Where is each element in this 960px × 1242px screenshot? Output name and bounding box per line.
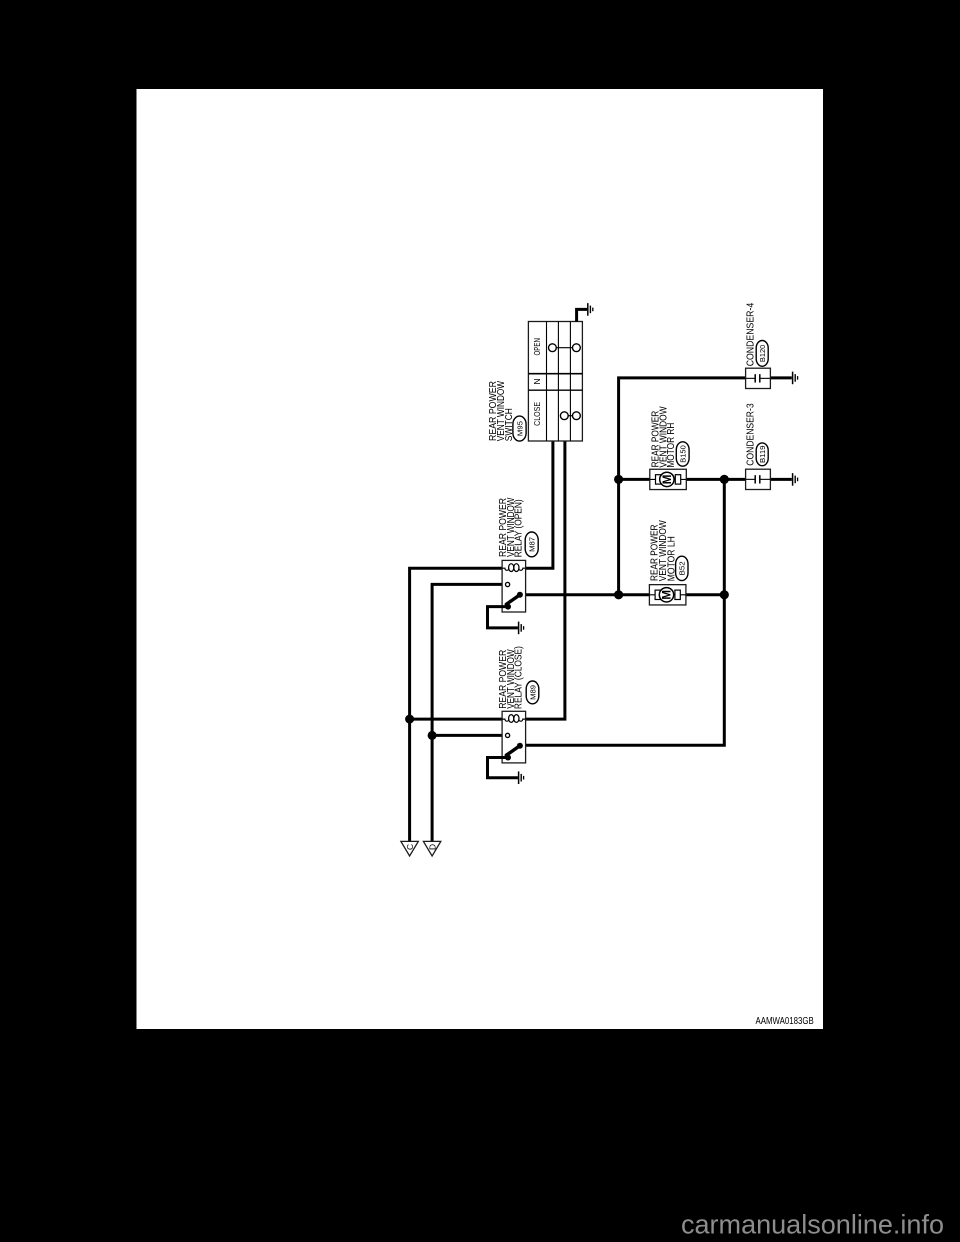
svg-text:carmanualsonline.info: carmanualsonline.info: [681, 1209, 944, 1239]
svg-text:OPEN: OPEN: [532, 338, 542, 356]
svg-text:B150: B150: [679, 445, 688, 463]
svg-text:N: N: [532, 378, 542, 384]
svg-text:D: D: [428, 844, 438, 850]
svg-text:M95: M95: [515, 421, 524, 436]
svg-text:C: C: [405, 844, 415, 850]
svg-text:CLOSE: CLOSE: [532, 402, 542, 426]
svg-text:B52: B52: [678, 561, 687, 575]
svg-text:M: M: [661, 590, 674, 600]
svg-text:M87: M87: [528, 537, 537, 552]
svg-text:M: M: [661, 475, 674, 485]
svg-text:AAMWA0183GB: AAMWA0183GB: [756, 1016, 814, 1027]
svg-text:CONDENSER-3: CONDENSER-3: [745, 403, 756, 466]
svg-text:M89: M89: [528, 685, 537, 700]
svg-text:B120: B120: [758, 345, 767, 363]
svg-text:CONDENSER-4: CONDENSER-4: [745, 302, 756, 366]
svg-text:RELAY (CLOSE): RELAY (CLOSE): [514, 646, 525, 709]
svg-text:RELAY (OPEN): RELAY (OPEN): [514, 499, 525, 557]
svg-text:B119: B119: [758, 446, 767, 464]
svg-text:MOTOR RH: MOTOR RH: [666, 423, 677, 468]
